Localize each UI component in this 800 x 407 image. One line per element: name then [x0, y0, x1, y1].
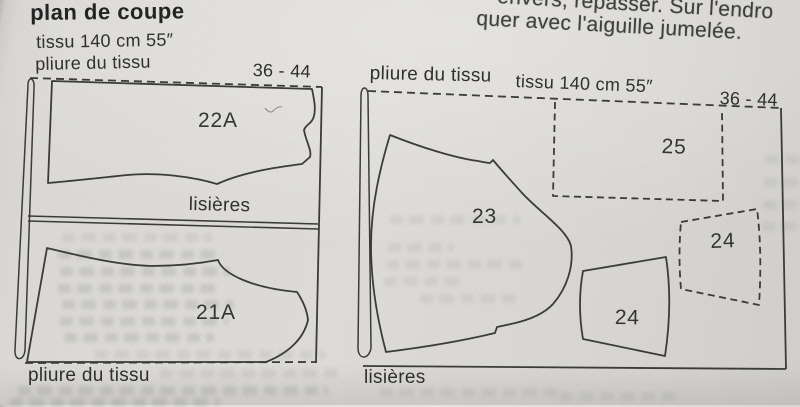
left-fabric-width-label: tissu 140 cm 55″: [36, 31, 174, 52]
left-fold-top-label: pliure du tissu: [35, 53, 151, 74]
left-fabric-fold-edge: [15, 79, 34, 359]
scanned-page: plan de coupe tissu 140 cm 55″ pliure du…: [0, 0, 800, 405]
right-fold-label: pliure du tissu: [370, 64, 492, 86]
piece-24-dashed-label: 24: [710, 230, 736, 253]
stray-pencil-mark: [265, 107, 282, 112]
piece-25-dashed-outline: [553, 102, 723, 201]
piece-24-solid-label: 24: [615, 307, 640, 329]
left-selvages-label: lisières: [189, 195, 251, 216]
right-fabric-right-edge: [781, 108, 786, 369]
piece-21a-outline: [27, 248, 308, 362]
right-fabric-fold-edge: [358, 88, 371, 357]
piece-22a-label: 22A: [198, 110, 238, 132]
piece-24-dashed-outline: [680, 209, 761, 305]
right-selvage-line: [363, 366, 786, 369]
right-selvages-label: lisières: [364, 368, 426, 388]
left-size-range-label: 36 - 44: [253, 61, 312, 81]
piece-23-outline: [371, 135, 572, 352]
right-size-range-label: 36 - 44: [719, 89, 778, 110]
page-title: plan de coupe: [30, 0, 185, 24]
piece-23-label: 23: [472, 206, 497, 228]
piece-25-label: 25: [661, 136, 687, 159]
piece-21a-label: 21A: [196, 302, 236, 324]
piece-22a-outline: [48, 81, 315, 184]
left-fold-bottom-label: pliure du tissu: [28, 366, 150, 386]
left-fabric-right-edge: [316, 87, 322, 363]
